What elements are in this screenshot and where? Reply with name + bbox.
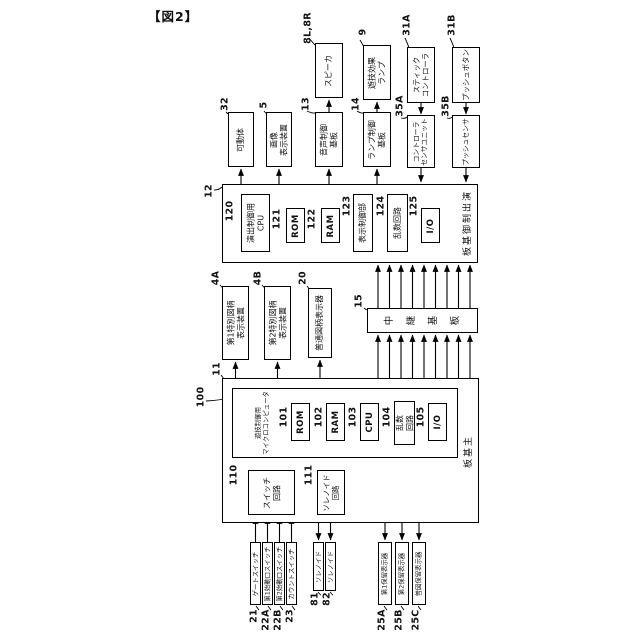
ref-4B: 4B [252, 269, 263, 286]
ref-15: 15 [353, 293, 364, 309]
ref-22B: 22B [273, 608, 283, 631]
solenoid-81-block: ソレノイド [313, 542, 324, 591]
speaker-label: スピーカ [324, 44, 334, 97]
main-io-block: I/O [428, 403, 447, 441]
hold2-display-block: 第2保留表示器 [395, 542, 409, 605]
solenoid-circuit-label: ソレノイド 回路 [322, 471, 340, 514]
special2-display-block: 第2特別図柄 表示装置 [264, 286, 291, 360]
ref-82: 82 [322, 592, 332, 606]
game-micro-label-box: 遊技制御用 マイクロコンピュータ [246, 390, 280, 456]
push-button-block: プッシュボタン [452, 47, 480, 103]
normal-hold-display-label: 普図保留表示器 [415, 543, 422, 604]
ref-125: 125 [409, 196, 419, 216]
hold1-display-block: 第1保留表示器 [378, 542, 392, 605]
solenoid-82-block: ソレノイド [325, 542, 336, 591]
gate-switch-label: ゲートスイッチ [252, 543, 259, 604]
ref-4A: 4A [210, 269, 221, 286]
display-ctrl-label: 表示制御部 [358, 195, 368, 251]
count-switch-block: カウントスイッチ [286, 542, 297, 605]
normal-display-label: 普通図柄表示器 [315, 290, 325, 356]
main-board-label: 主基板 [461, 427, 478, 477]
image-display-label: 画像 表示装置 [269, 113, 289, 166]
ref-32: 32 [219, 95, 230, 113]
effect-ram-label: RAM [325, 214, 335, 237]
main-io-label: I/O [432, 415, 442, 430]
figure-title: 【図2】 [148, 6, 198, 25]
effect-rand-block: 乱数回路 [387, 194, 408, 252]
effect-cpu-label: 演出制御用 CPU [246, 195, 266, 251]
game-micro-label: 遊技制御用 マイクロコンピュータ [255, 390, 271, 456]
ref-110: 110 [228, 465, 239, 485]
ref-100: 100 [196, 385, 206, 409]
main-ram-block: RAM [326, 403, 345, 441]
hold1-display-label: 第1保留表示器 [381, 543, 388, 604]
ref-23: 23 [285, 608, 295, 624]
ref-25B: 25B [394, 608, 404, 631]
ref-12: 12 [203, 183, 214, 198]
effect-rom-block: ROM [286, 208, 305, 243]
push-sensor-label: プッシュセンサ [462, 116, 470, 167]
normal-display-block: 普通図柄表示器 [308, 288, 332, 358]
push-sensor-block: プッシュセンサ [452, 115, 480, 168]
ref-35A: 35A [394, 93, 405, 119]
push-button-label: プッシュボタン [461, 48, 470, 102]
ref-102: 102 [314, 407, 324, 427]
count-switch-label: カウントスイッチ [288, 543, 295, 604]
main-rom-label: ROM [295, 410, 305, 434]
ref-103: 103 [348, 407, 358, 427]
lamp-board-block: ランプ制御 基板 [363, 112, 391, 167]
special1-display-label: 第1特別図柄 表示装置 [226, 288, 246, 358]
normal-hold-display-block: 普図保留表示器 [412, 542, 426, 605]
main-rand-block: 乱数 回路 [394, 401, 415, 445]
movable-body-block: 可動体 [228, 112, 254, 167]
solenoid-82-label: ソレノイド [327, 543, 334, 590]
ref-104: 104 [382, 407, 392, 427]
ref-5: 5 [258, 99, 269, 111]
stick-controller-label: スティック コントローラ [412, 48, 430, 102]
ref-11: 11 [211, 362, 222, 376]
start1-switch-label: 第1始動口スイッチ [264, 543, 271, 604]
ref-31B: 31B [446, 11, 457, 38]
main-rom-block: ROM [291, 403, 310, 441]
solenoid-81-label: ソレノイド [315, 543, 322, 590]
patent-figure-page: 【図2】 スピーカ 遊技効果 ランプ スティック コントローラ プッシュボタン … [0, 0, 640, 640]
start2-switch-label: 第2始動口スイッチ [276, 543, 283, 604]
ref-121: 121 [272, 209, 282, 229]
ref-25A: 25A [377, 608, 387, 631]
ref-13: 13 [300, 96, 311, 112]
effect-board-label: 演出制御基板 [460, 189, 477, 258]
main-cpu-label: CPU [364, 412, 374, 433]
speaker-block: スピーカ [315, 43, 343, 98]
ref-20: 20 [297, 269, 308, 286]
effect-cpu-block: 演出制御用 CPU [241, 194, 270, 252]
display-ctrl-block: 表示制御部 [353, 194, 373, 252]
hold2-display-label: 第2保留表示器 [398, 543, 405, 604]
effect-io-label: I/O [425, 218, 435, 233]
switch-circuit-block: スイッチ 回路 [248, 470, 295, 515]
game-effect-lamp-label: 遊技効果 ランプ [367, 46, 387, 99]
ref-25C: 25C [411, 608, 421, 631]
ref-14: 14 [350, 96, 361, 112]
lamp-board-label: ランプ制御 基板 [367, 113, 387, 166]
special1-display-block: 第1特別図柄 表示装置 [222, 286, 249, 360]
ref-9: 9 [357, 25, 368, 39]
sound-board-label: 音声制御 基板 [319, 113, 339, 166]
ref-8L8R: 8L,8R [302, 9, 314, 47]
stick-controller-block: スティック コントローラ [407, 47, 435, 103]
ref-35B: 35B [440, 93, 451, 119]
game-effect-lamp-block: 遊技効果 ランプ [363, 45, 391, 100]
ref-21: 21 [249, 608, 259, 624]
start1-switch-block: 第1始動口スイッチ [262, 542, 273, 605]
start2-switch-block: 第2始動口スイッチ [274, 542, 285, 605]
movable-body-label: 可動体 [236, 113, 246, 166]
ref-81: 81 [310, 592, 320, 606]
main-rand-label: 乱数 回路 [395, 402, 415, 444]
main-ram-label: RAM [330, 410, 340, 433]
sound-board-block: 音声制御 基板 [315, 112, 343, 167]
solenoid-circuit-block: ソレノイド 回路 [317, 470, 345, 515]
ref-111: 111 [303, 465, 314, 485]
controller-sensor-label: コントローラ センサユニット [413, 116, 430, 167]
main-cpu-block: CPU [360, 403, 379, 441]
ref-120: 120 [225, 201, 235, 221]
effect-ram-block: RAM [321, 208, 340, 243]
ref-124: 124 [376, 196, 386, 216]
relay-board-label: 中継基板 [367, 308, 478, 333]
ref-122: 122 [307, 209, 317, 229]
ref-22A: 22A [261, 608, 271, 631]
gate-switch-block: ゲートスイッチ [250, 542, 261, 605]
ref-101: 101 [279, 407, 289, 427]
effect-io-block: I/O [421, 208, 440, 243]
switch-circuit-label: スイッチ 回路 [262, 471, 282, 514]
ref-31A: 31A [401, 11, 412, 38]
effect-rom-label: ROM [290, 214, 300, 238]
special2-display-label: 第2特別図柄 表示装置 [268, 288, 288, 358]
effect-rand-label: 乱数回路 [393, 195, 403, 251]
image-display-block: 画像 表示装置 [266, 112, 292, 167]
controller-sensor-block: コントローラ センサユニット [407, 115, 435, 168]
ref-123: 123 [342, 196, 352, 216]
ref-105: 105 [416, 407, 426, 427]
